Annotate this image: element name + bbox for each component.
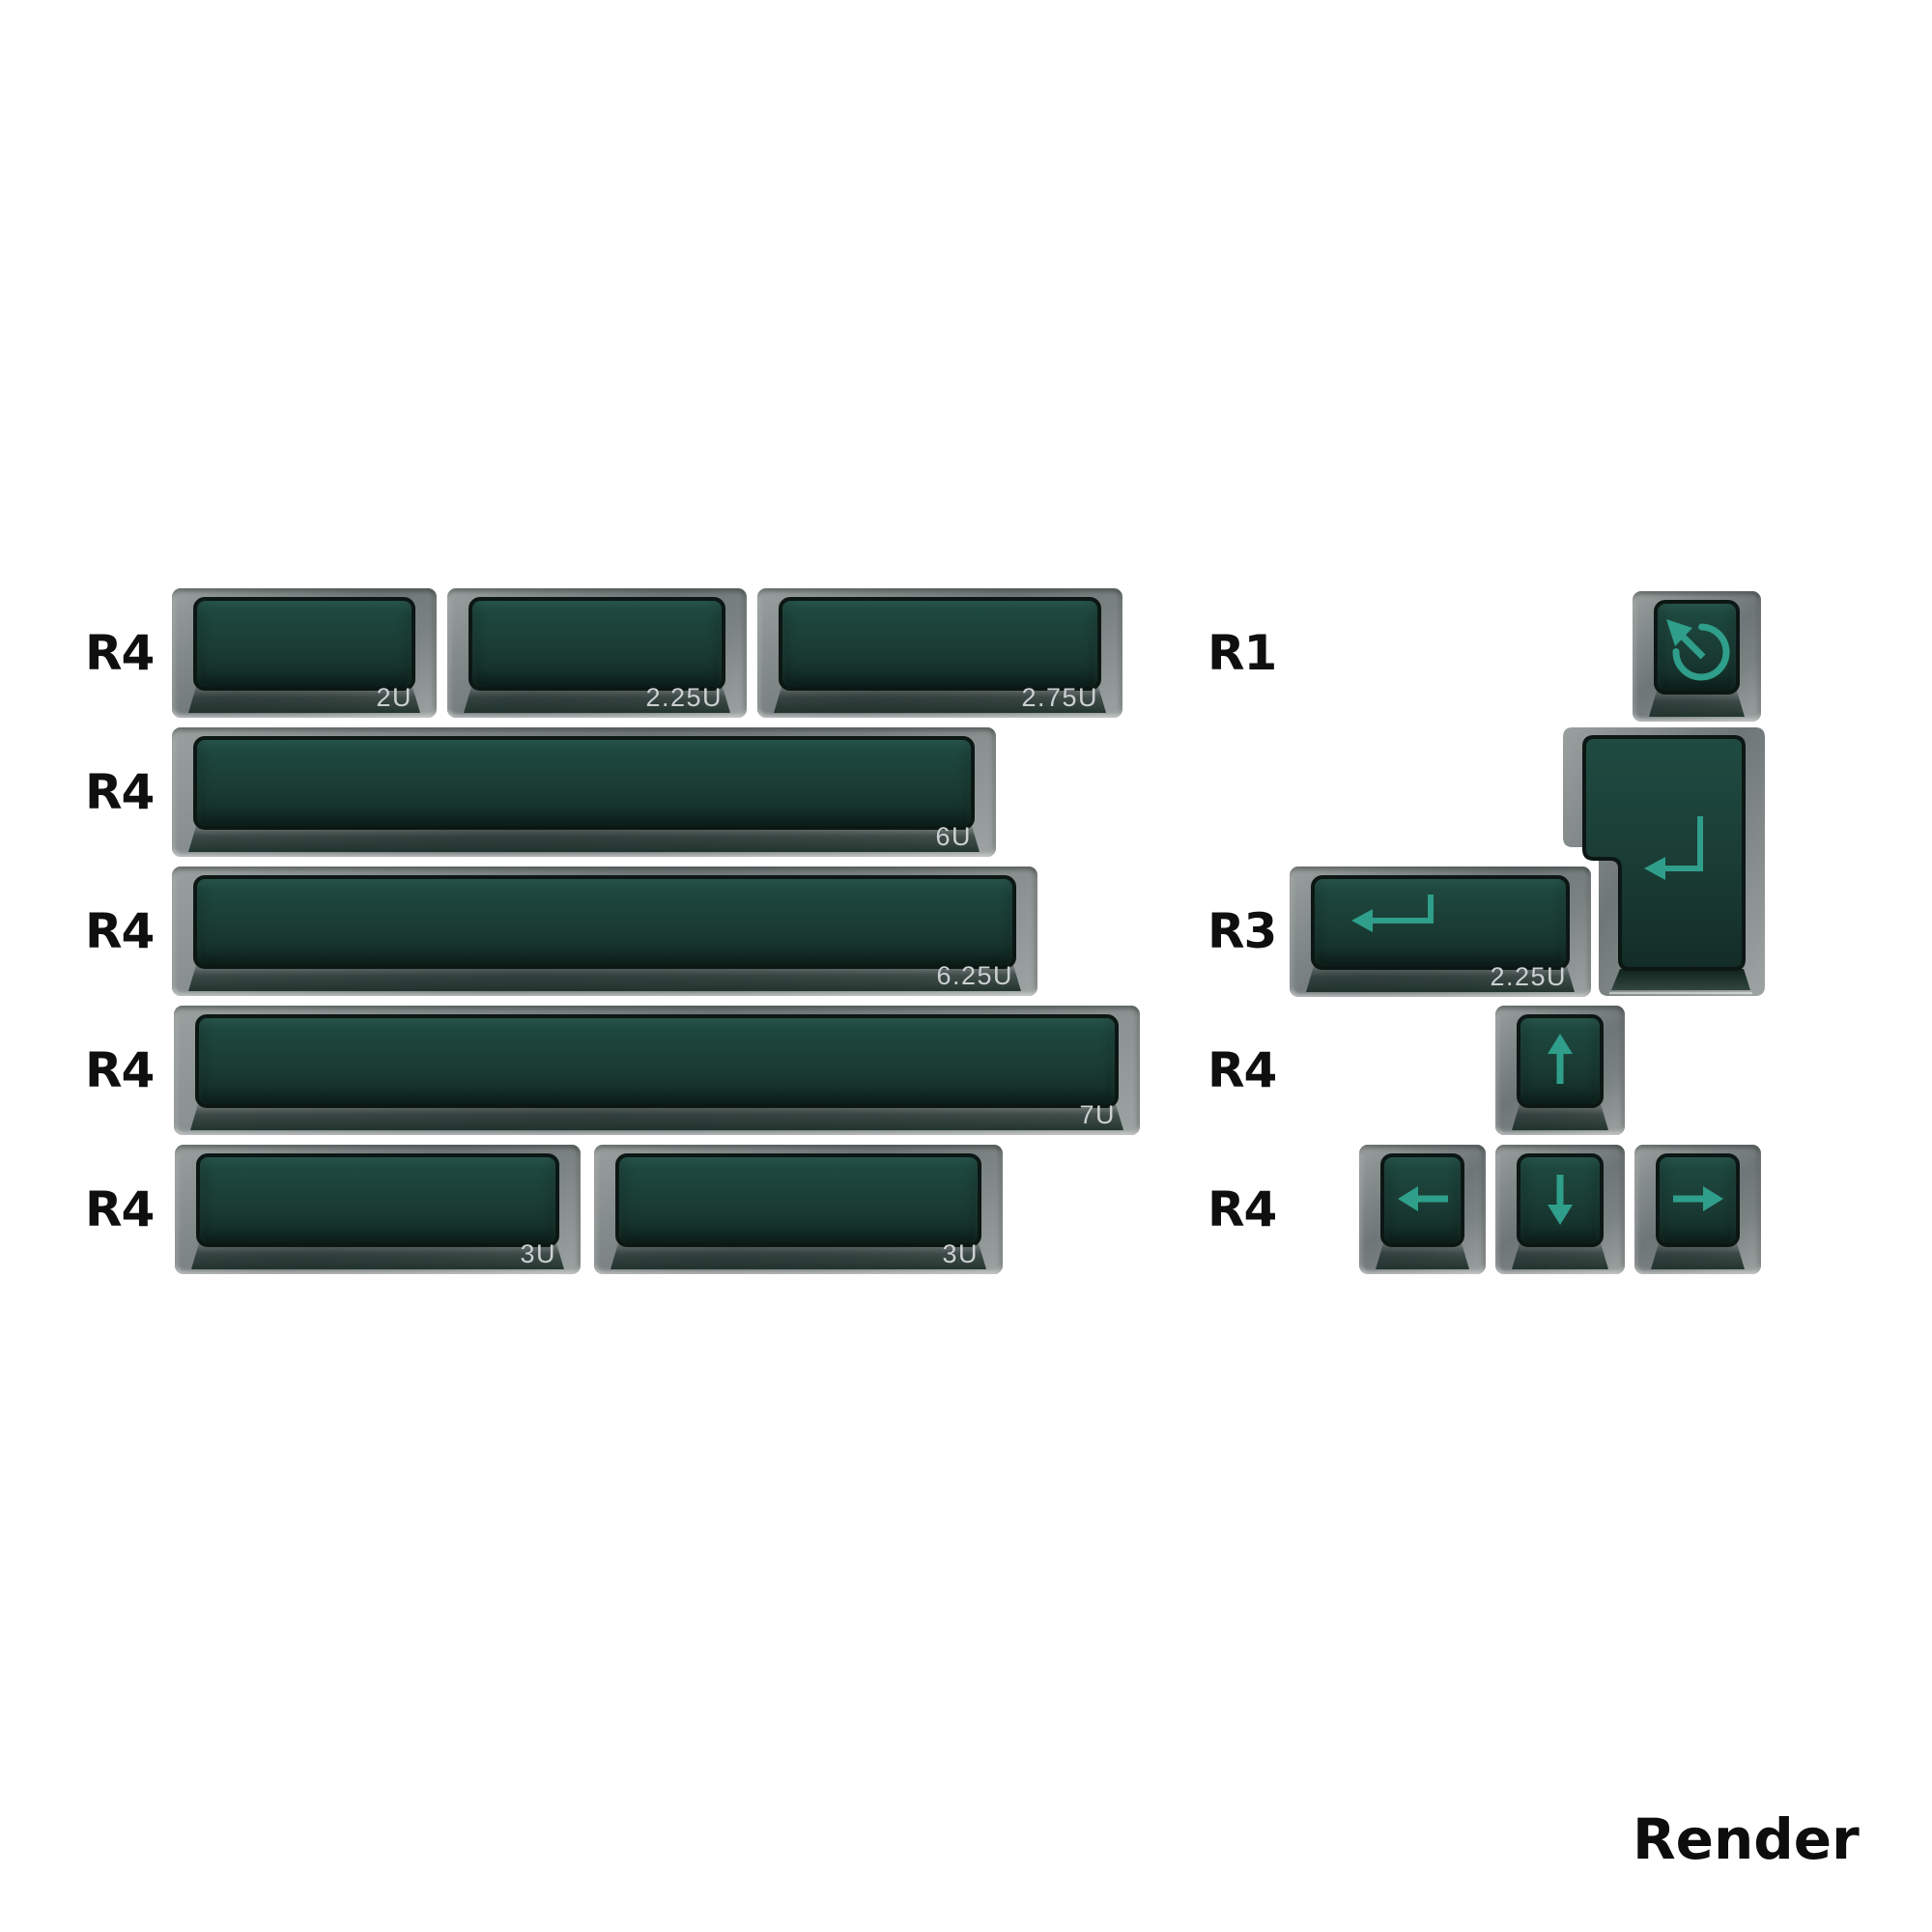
keycap-iso-enter xyxy=(1563,727,1765,996)
return-icon xyxy=(1346,891,1438,939)
size-label: 2.25U xyxy=(645,683,723,713)
arrow-left-icon xyxy=(1396,1183,1450,1218)
keycap-skirt xyxy=(191,1243,564,1269)
keycap-skirt xyxy=(1651,1243,1745,1269)
keycap-skirt xyxy=(1376,1243,1469,1269)
keycap-render-sheet: R42U2.25U2.75UR46UR46.25UR47UR43U3U R1R3… xyxy=(0,0,1932,1932)
keycap-skirt xyxy=(1649,691,1745,717)
keycap-r4-7u: 7U xyxy=(174,1006,1140,1135)
keycap-r1-275u: 2.75U xyxy=(757,588,1122,718)
keycap-rr5-left xyxy=(1359,1145,1486,1274)
keycap-face xyxy=(195,1014,1119,1108)
keycap-skirt xyxy=(1512,1104,1608,1130)
size-label: 2.75U xyxy=(1021,683,1098,713)
size-label: 7U xyxy=(1079,1100,1116,1130)
render-caption: Render xyxy=(1633,1806,1860,1872)
keycap-face xyxy=(193,736,975,830)
keycap-face xyxy=(193,875,1016,969)
keycap-r3-625u: 6.25U xyxy=(172,867,1037,996)
keycap-face xyxy=(193,597,415,691)
keycap-r2-6u: 6U xyxy=(172,727,996,857)
size-label: 2.25U xyxy=(1490,962,1567,992)
keycap-face xyxy=(615,1153,981,1247)
size-label: 3U xyxy=(942,1239,979,1269)
keycap-rr5-right xyxy=(1634,1145,1761,1274)
row-label-right-3: R4 xyxy=(1207,1043,1276,1097)
keycap-rr5-down xyxy=(1495,1145,1625,1274)
keycap-r1-225u: 2.25U xyxy=(447,588,747,718)
size-label: 2U xyxy=(376,683,412,713)
size-label: 3U xyxy=(520,1239,556,1269)
keycap-face xyxy=(1656,1153,1740,1247)
arrow-up-icon xyxy=(1545,1032,1576,1092)
keycap-rr3-225u: 2.25U xyxy=(1290,867,1591,997)
row-label-right-2: R3 xyxy=(1207,904,1276,958)
keycap-rr1-rotate xyxy=(1633,591,1761,722)
keycap-face xyxy=(469,597,725,691)
row-label-right-0: R1 xyxy=(1207,626,1276,680)
keycap-face xyxy=(1517,1153,1604,1247)
keycap-skirt xyxy=(611,1243,986,1269)
iso-enter-shape xyxy=(1563,727,1765,996)
keycap-face xyxy=(779,597,1101,691)
keycap-skirt xyxy=(188,965,1021,991)
keycap-face xyxy=(1311,875,1570,970)
keycap-face xyxy=(1654,600,1740,695)
keycap-face xyxy=(196,1153,559,1247)
keycap-r5-3u-a: 3U xyxy=(175,1145,581,1274)
keycap-skirt xyxy=(188,826,980,852)
row-label-right-4: R4 xyxy=(1207,1182,1276,1236)
size-label: 6U xyxy=(935,822,972,852)
rotate-ccw-icon xyxy=(1653,601,1742,694)
size-label: 6.25U xyxy=(936,961,1013,991)
keycap-r5-3u-b: 3U xyxy=(594,1145,1003,1274)
keycap-r1-2u: 2U xyxy=(172,588,437,718)
arrow-down-icon xyxy=(1545,1171,1576,1231)
keycap-skirt xyxy=(190,1104,1123,1130)
keycap-skirt xyxy=(1512,1243,1608,1269)
keycap-face xyxy=(1517,1014,1604,1108)
keycap-face xyxy=(1380,1153,1464,1247)
arrow-right-icon xyxy=(1671,1183,1725,1218)
keycap-rr4-up xyxy=(1495,1006,1625,1135)
